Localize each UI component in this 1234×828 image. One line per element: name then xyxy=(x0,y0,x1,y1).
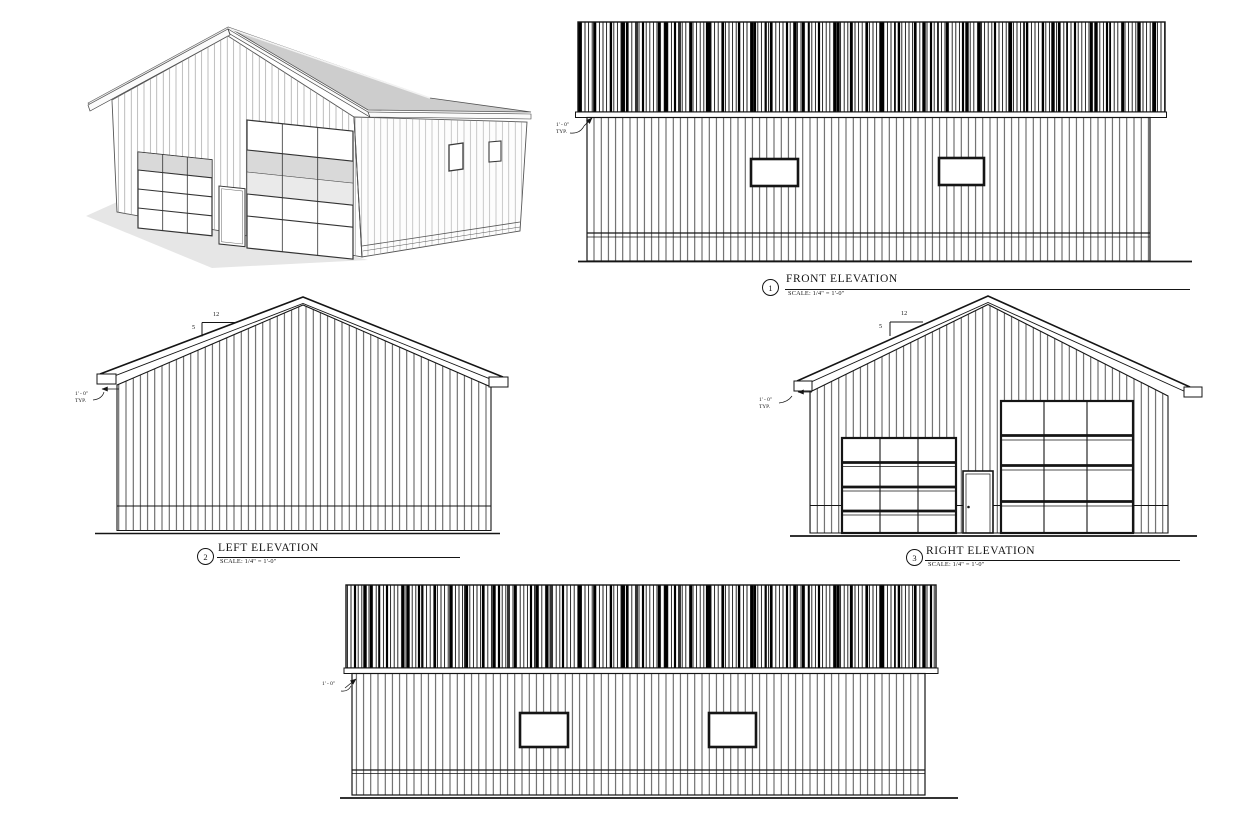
right-view-number-bubble: 3 xyxy=(906,549,923,566)
left-wall-siding xyxy=(117,305,491,531)
right-overhang-typ: TYP. xyxy=(759,404,772,411)
left-view-number-bubble: 2 xyxy=(197,548,214,565)
right-pitch-run: 12 xyxy=(901,310,907,317)
garage-door-large-3d xyxy=(247,120,353,259)
right-garage-door-small xyxy=(842,438,956,533)
elevation-sheet: 1 FRONT ELEVATION SCALE: 1/4" = 1'-0" 1'… xyxy=(0,0,1234,828)
right-overhang-leader xyxy=(779,396,792,403)
man-door-3d xyxy=(219,186,245,247)
left-pitch-run: 12 xyxy=(213,311,219,318)
front-view-number-bubble: 1 xyxy=(762,279,779,296)
right-man-door xyxy=(963,471,993,533)
front-roof-hatch3 xyxy=(578,22,1165,112)
front-view-title: FRONT ELEVATION xyxy=(786,273,898,285)
rear-roof-hatch3 xyxy=(346,585,936,668)
rear-window-1 xyxy=(520,713,568,747)
right-pitch-rise: 5 xyxy=(879,323,882,330)
front-title-rule xyxy=(785,289,1190,290)
right-overhang-note: 1' - 0" TYP. xyxy=(759,397,772,411)
front-window-2 xyxy=(939,158,984,185)
front-elevation xyxy=(570,22,1192,262)
front-overhang-leader xyxy=(570,126,584,133)
left-pitch-rise: 5 xyxy=(192,324,195,331)
side-window-2-3d xyxy=(489,141,501,162)
right-garage-door-large xyxy=(1001,401,1133,533)
front-overhang-dim: 1' - 0" xyxy=(556,122,569,129)
right-view-title: RIGHT ELEVATION xyxy=(926,545,1035,557)
front-scale-note: SCALE: 1/4" = 1'-0" xyxy=(788,290,844,297)
left-elevation xyxy=(93,297,508,534)
perspective-view xyxy=(86,27,531,268)
left-overhang-note: 1' - 0" TYP. xyxy=(75,391,88,405)
left-eave-box-l xyxy=(97,374,116,384)
right-overhang-dim: 1' - 0" xyxy=(759,397,772,404)
front-overhang-note: 1' - 0" TYP. xyxy=(556,122,569,136)
right-eave-box-r xyxy=(1184,387,1202,397)
left-overhang-typ: TYP. xyxy=(75,398,88,405)
right-eave-box-l xyxy=(794,381,812,391)
door-knob xyxy=(967,506,970,509)
front-window-1 xyxy=(751,159,798,186)
left-eave-box-r xyxy=(489,377,508,387)
garage-door-small-3d xyxy=(138,152,212,236)
rear-wall-siding xyxy=(352,674,925,796)
left-overhang-dim: 1' - 0" xyxy=(75,391,88,398)
rear-overhang-note: 1' - 0" xyxy=(322,681,335,688)
right-elevation xyxy=(779,296,1202,536)
rear-overhang-dim: 1' - 0" xyxy=(322,681,335,688)
left-view-title: LEFT ELEVATION xyxy=(218,542,319,554)
left-overhang-leader xyxy=(93,392,104,400)
front-fascia xyxy=(576,112,1167,118)
front-overhang-typ: TYP. xyxy=(556,129,569,136)
side-window-1-3d xyxy=(449,143,463,171)
rear-window-2 xyxy=(709,713,756,747)
right-scale-note: SCALE: 1/4" = 1'-0" xyxy=(928,561,984,568)
front-wall-siding xyxy=(587,118,1150,262)
front-view-number: 1 xyxy=(768,283,772,293)
drawing-canvas xyxy=(0,0,1234,828)
rear-fascia xyxy=(344,668,938,674)
right-view-number: 3 xyxy=(912,553,916,563)
left-scale-note: SCALE: 1/4" = 1'-0" xyxy=(220,558,276,565)
rear-elevation xyxy=(340,585,958,798)
side-wall-siding xyxy=(354,117,527,257)
left-view-number: 2 xyxy=(203,552,207,562)
